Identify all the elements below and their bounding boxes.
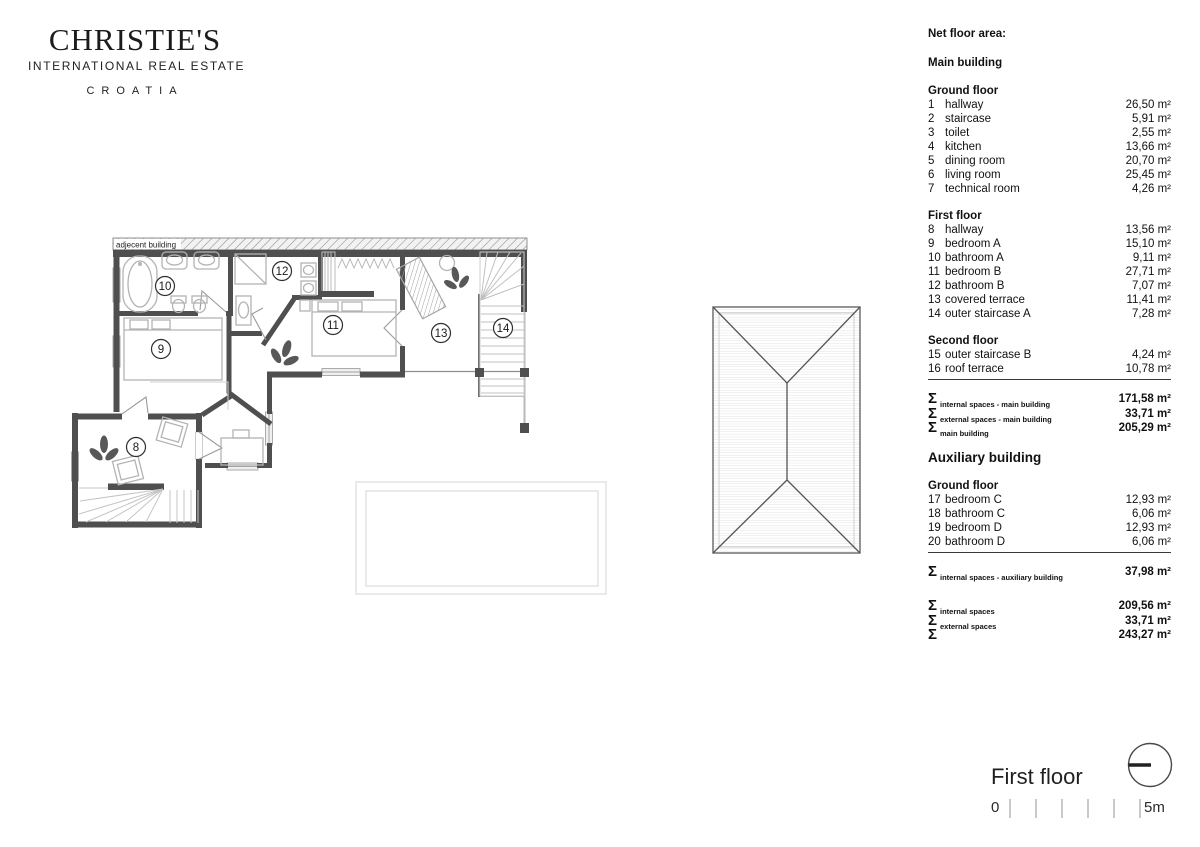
group-heading: Ground floor bbox=[928, 84, 1171, 98]
row-number: 2 bbox=[928, 112, 945, 126]
row-number: 14 bbox=[928, 307, 945, 321]
sigma-area: 171,58 m² bbox=[1119, 392, 1171, 407]
sigma-label: internal spaces - main building bbox=[940, 398, 1050, 413]
pool-outline bbox=[356, 482, 606, 594]
row-area: 13,56 m² bbox=[1126, 223, 1171, 237]
table-row: 14outer staircase A7,28 m² bbox=[928, 307, 1171, 321]
row-label: bathroom B bbox=[945, 279, 1132, 293]
row-area: 20,70 m² bbox=[1126, 154, 1171, 168]
sigma-row: Σinternal spaces - auxiliary building37,… bbox=[928, 565, 1171, 580]
sigma-area: 205,29 m² bbox=[1119, 421, 1171, 436]
row-label: dining room bbox=[945, 154, 1126, 168]
table-row: 7technical room4,26 m² bbox=[928, 182, 1171, 196]
row-area: 7,07 m² bbox=[1132, 279, 1171, 293]
row-label: living room bbox=[945, 168, 1126, 182]
table-row: 3toilet2,55 m² bbox=[928, 126, 1171, 140]
row-number: 19 bbox=[928, 521, 945, 535]
row-area: 9,11 m² bbox=[1133, 251, 1171, 265]
table-rule bbox=[928, 379, 1171, 380]
group-heading: Second floor bbox=[928, 334, 1171, 348]
room-number-label: 14 bbox=[497, 323, 510, 335]
row-number: 9 bbox=[928, 237, 945, 251]
row-label: bedroom B bbox=[945, 265, 1126, 279]
row-number: 15 bbox=[928, 348, 945, 362]
sigma-section: Σinternal spaces - auxiliary building37,… bbox=[928, 565, 1171, 580]
table-row: 6living room25,45 m² bbox=[928, 168, 1171, 182]
table-group: Second floor15outer staircase B4,24 m²16… bbox=[928, 334, 1171, 380]
row-number: 13 bbox=[928, 293, 945, 307]
table-sections: Main buildingGround floor1hallway26,50 m… bbox=[928, 56, 1171, 643]
room-number-label: 13 bbox=[435, 328, 448, 340]
sigma-row: Σinternal spaces - main building171,58 m… bbox=[928, 392, 1171, 407]
row-label: outer staircase B bbox=[945, 348, 1132, 362]
sigma-symbol: Σ bbox=[928, 565, 937, 579]
table-group: Ground floor1hallway26,50 m²2staircase5,… bbox=[928, 84, 1171, 196]
sigma-label: internal spaces - auxiliary building bbox=[940, 571, 1063, 586]
row-area: 4,26 m² bbox=[1132, 182, 1171, 196]
row-number: 7 bbox=[928, 182, 945, 196]
row-area: 25,45 m² bbox=[1126, 168, 1171, 182]
row-label: roof terrace bbox=[945, 362, 1126, 376]
row-label: bedroom D bbox=[945, 521, 1126, 535]
table-subtitle: Auxiliary building bbox=[928, 451, 1171, 465]
row-label: staircase bbox=[945, 112, 1132, 126]
roof-plan bbox=[713, 307, 860, 553]
row-number: 17 bbox=[928, 493, 945, 507]
group-heading: Ground floor bbox=[928, 479, 1171, 493]
row-number: 12 bbox=[928, 279, 945, 293]
north-indicator-icon bbox=[1129, 744, 1172, 787]
bedroom-b-furniture bbox=[300, 252, 396, 356]
row-area: 7,28 m² bbox=[1132, 307, 1171, 321]
table-subtitle: Main building bbox=[928, 56, 1171, 70]
table-row: 19bedroom D12,93 m² bbox=[928, 521, 1171, 535]
adjacent-building-label: adjecent building bbox=[116, 241, 176, 250]
row-area: 2,55 m² bbox=[1132, 126, 1171, 140]
row-label: kitchen bbox=[945, 140, 1126, 154]
sigma-symbol: Σ bbox=[928, 628, 937, 642]
row-number: 1 bbox=[928, 98, 945, 112]
sigma-label: external spaces - main building bbox=[940, 413, 1052, 428]
row-number: 6 bbox=[928, 168, 945, 182]
row-area: 4,24 m² bbox=[1132, 348, 1171, 362]
room-number-label: 11 bbox=[327, 320, 339, 332]
row-area: 12,93 m² bbox=[1126, 521, 1171, 535]
sigma-label: internal spaces bbox=[940, 605, 995, 620]
row-area: 5,91 m² bbox=[1132, 112, 1171, 126]
sigma-label: external spaces bbox=[940, 620, 996, 635]
table-row: 4kitchen13,66 m² bbox=[928, 140, 1171, 154]
room-number-label: 12 bbox=[276, 266, 289, 278]
sigma-area: 33,71 m² bbox=[1125, 614, 1171, 629]
sigma-row: Σinternal spaces209,56 m² bbox=[928, 599, 1171, 614]
table-group: First floor8hallway13,56 m²9bedroom A15,… bbox=[928, 209, 1171, 321]
row-area: 11,41 m² bbox=[1126, 293, 1171, 307]
scale-end-label: 5m bbox=[1144, 799, 1165, 816]
row-label: bedroom A bbox=[945, 237, 1126, 251]
row-number: 5 bbox=[928, 154, 945, 168]
row-number: 10 bbox=[928, 251, 945, 265]
terrace-furniture bbox=[396, 256, 454, 319]
table-row: 9bedroom A15,10 m² bbox=[928, 237, 1171, 251]
table-row: 8hallway13,56 m² bbox=[928, 223, 1171, 237]
row-label: bedroom C bbox=[945, 493, 1126, 507]
room-number-label: 8 bbox=[133, 442, 139, 454]
row-area: 15,10 m² bbox=[1126, 237, 1171, 251]
table-row: 10bathroom A9,11 m² bbox=[928, 251, 1171, 265]
table-row: 13covered terrace11,41 m² bbox=[928, 293, 1171, 307]
row-number: 8 bbox=[928, 223, 945, 237]
row-label: bathroom A bbox=[945, 251, 1133, 265]
room-number-label: 9 bbox=[158, 344, 164, 356]
row-area: 26,50 m² bbox=[1126, 98, 1171, 112]
row-area: 13,66 m² bbox=[1126, 140, 1171, 154]
row-number: 16 bbox=[928, 362, 945, 376]
table-row: 18bathroom C6,06 m² bbox=[928, 507, 1171, 521]
row-number: 4 bbox=[928, 140, 945, 154]
table-row: 15outer staircase B4,24 m² bbox=[928, 348, 1171, 362]
scale-zero-label: 0 bbox=[991, 799, 999, 816]
sigma-area: 243,27 m² bbox=[1119, 628, 1171, 643]
table-row: 1hallway26,50 m² bbox=[928, 98, 1171, 112]
sigma-section: Σinternal spaces209,56 m²Σexternal space… bbox=[928, 599, 1171, 643]
sigma-area: 209,56 m² bbox=[1119, 599, 1171, 614]
table-row: 16roof terrace10,78 m² bbox=[928, 362, 1171, 376]
row-number: 3 bbox=[928, 126, 945, 140]
sigma-section: Σinternal spaces - main building171,58 m… bbox=[928, 392, 1171, 436]
net-floor-area-table: Net floor area: Main buildingGround floo… bbox=[928, 27, 1171, 643]
table-row: 12bathroom B7,07 m² bbox=[928, 279, 1171, 293]
row-label: bathroom D bbox=[945, 535, 1132, 549]
adjacent-building-band: adjecent building bbox=[113, 238, 527, 251]
floor-title: First floor bbox=[991, 764, 1083, 790]
group-heading: First floor bbox=[928, 209, 1171, 223]
row-area: 10,78 m² bbox=[1126, 362, 1171, 376]
row-area: 6,06 m² bbox=[1132, 507, 1171, 521]
row-label: hallway bbox=[945, 98, 1126, 112]
table-row: 2staircase5,91 m² bbox=[928, 112, 1171, 126]
table-row: 17bedroom C12,93 m² bbox=[928, 493, 1171, 507]
row-label: outer staircase A bbox=[945, 307, 1132, 321]
row-label: bathroom C bbox=[945, 507, 1132, 521]
table-title: Net floor area: bbox=[928, 27, 1171, 41]
row-number: 11 bbox=[928, 265, 945, 279]
sigma-symbol: Σ bbox=[928, 599, 937, 613]
sigma-area: 33,71 m² bbox=[1125, 407, 1171, 422]
room-number-label: 10 bbox=[159, 281, 172, 293]
table-rule bbox=[928, 552, 1171, 553]
row-label: toilet bbox=[945, 126, 1132, 140]
sigma-symbol: Σ bbox=[928, 421, 937, 435]
row-area: 12,93 m² bbox=[1126, 493, 1171, 507]
row-label: covered terrace bbox=[945, 293, 1126, 307]
row-number: 18 bbox=[928, 507, 945, 521]
table-group: Ground floor17bedroom C12,93 m²18bathroo… bbox=[928, 479, 1171, 553]
table-row: 5dining room20,70 m² bbox=[928, 154, 1171, 168]
table-row: 11bedroom B27,71 m² bbox=[928, 265, 1171, 279]
table-row: 20bathroom D6,06 m² bbox=[928, 535, 1171, 549]
row-label: technical room bbox=[945, 182, 1132, 196]
sigma-symbol: Σ bbox=[928, 392, 937, 406]
row-label: hallway bbox=[945, 223, 1126, 237]
hallway-staircase bbox=[79, 484, 198, 524]
scale-bar-ticks bbox=[1010, 799, 1140, 818]
bedroom-a-furniture bbox=[124, 318, 228, 410]
row-area: 27,71 m² bbox=[1126, 265, 1171, 279]
row-area: 6,06 m² bbox=[1132, 535, 1171, 549]
sigma-area: 37,98 m² bbox=[1125, 565, 1171, 580]
sigma-label: main building bbox=[940, 427, 989, 442]
east-wall-piers bbox=[475, 368, 529, 433]
row-number: 20 bbox=[928, 535, 945, 549]
